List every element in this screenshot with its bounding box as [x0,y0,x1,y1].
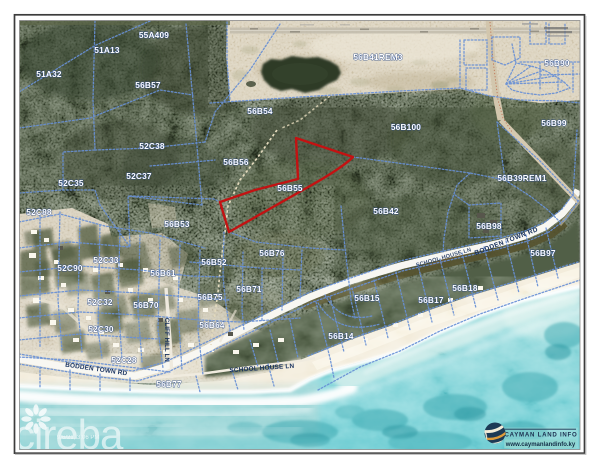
svg-text:56B76: 56B76 [259,248,285,258]
svg-text:52C32: 52C32 [87,297,113,307]
svg-text:56B98: 56B98 [476,221,502,231]
svg-text:56B57: 56B57 [135,80,161,90]
svg-text:9/6/21, 3:06 PM: 9/6/21, 3:06 PM [57,435,99,441]
svg-text:52C35: 52C35 [58,178,84,188]
svg-text:56B53: 56B53 [164,219,190,229]
svg-text:52C88: 52C88 [26,207,52,217]
svg-text:52C90: 52C90 [57,263,83,273]
svg-text:56B14: 56B14 [328,331,354,341]
svg-text:51A13: 51A13 [94,45,120,55]
svg-text:56B56: 56B56 [223,157,249,167]
svg-text:55A409: 55A409 [139,30,169,40]
svg-text:56B39REM1: 56B39REM1 [497,173,546,183]
svg-text:56B61: 56B61 [150,268,176,278]
svg-text:56B42: 56B42 [373,206,399,216]
svg-text:52C33: 52C33 [93,255,119,265]
svg-text:52C28: 52C28 [111,355,137,365]
svg-text:52C30: 52C30 [88,324,114,334]
svg-text:56B77: 56B77 [156,379,182,389]
svg-text:51A32: 51A32 [36,69,62,79]
svg-text:56B90: 56B90 [544,58,570,68]
svg-text:CAYMAN LAND INFO: CAYMAN LAND INFO [504,432,577,439]
svg-text:56B41REM3: 56B41REM3 [353,52,402,62]
svg-text:56B15: 56B15 [354,293,380,303]
svg-text:56B99: 56B99 [541,118,567,128]
svg-text:www.caymanlandinfo.ky: www.caymanlandinfo.ky [505,442,576,448]
svg-text:52C38: 52C38 [139,141,165,151]
svg-text:56B75: 56B75 [197,292,223,302]
svg-text:56B71: 56B71 [236,284,262,294]
svg-text:56B97: 56B97 [530,248,556,258]
svg-text:56B18: 56B18 [452,283,478,293]
svg-text:56B64: 56B64 [199,320,225,330]
svg-text:56B52: 56B52 [201,257,227,267]
svg-text:52C37: 52C37 [126,171,152,181]
svg-text:56B17: 56B17 [418,295,444,305]
svg-text:56B70: 56B70 [133,300,159,310]
svg-text:CLIFF HILL LN: CLIFF HILL LN [163,318,169,362]
svg-text:56B54: 56B54 [247,106,273,116]
svg-text:56B100: 56B100 [391,122,421,132]
svg-text:56B55: 56B55 [277,183,303,193]
